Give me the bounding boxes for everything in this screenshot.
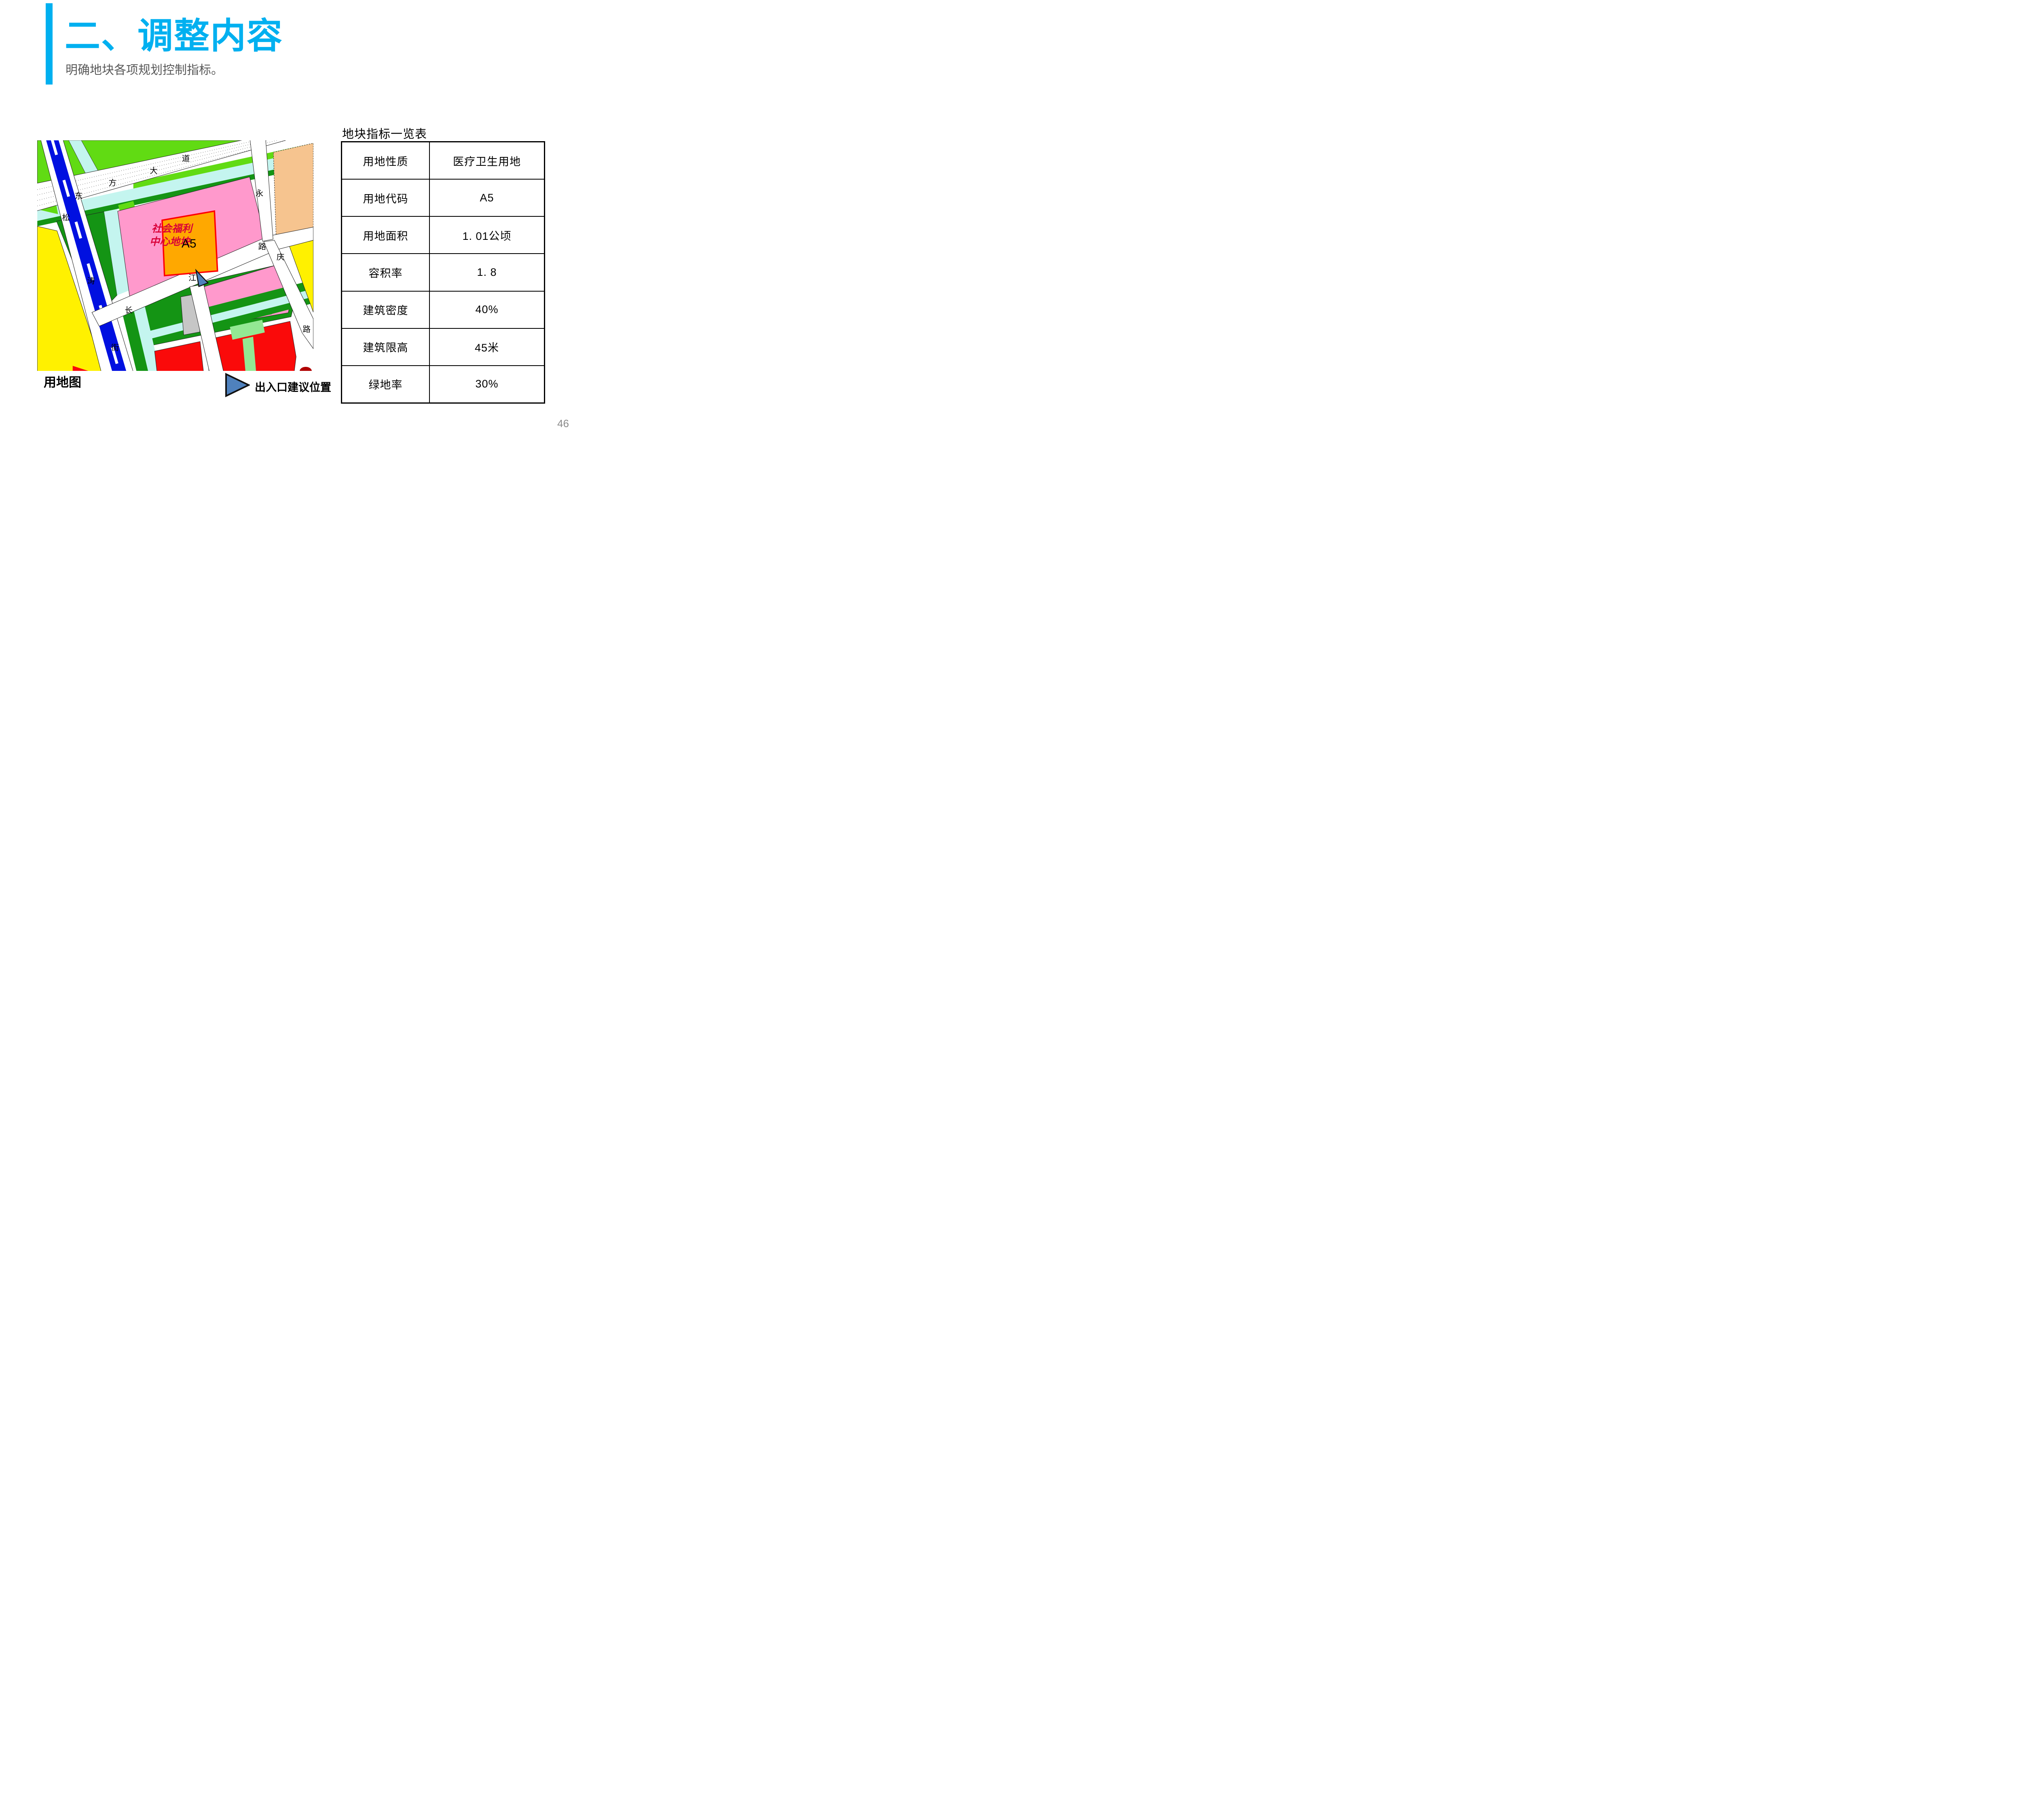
table-row: 用地性质 医疗卫生用地 (342, 142, 544, 180)
road-label-fang: 方 (109, 178, 117, 187)
land-use-map-svg: 东 方 大 道 松 涛 街 长 江 路 永 庆 路 社会福利 中心地块 A5 (37, 140, 313, 371)
row-label: 容积率 (342, 254, 430, 290)
parcel-red-southwest (154, 342, 203, 371)
row-label: 建筑限高 (342, 329, 430, 365)
row-value: 1. 01公顷 (430, 217, 544, 253)
page-title: 二、调整内容 (65, 7, 283, 59)
road-label-lu2: 路 (303, 325, 311, 334)
table-row: 建筑密度 40% (342, 292, 544, 329)
row-value: 40% (430, 292, 544, 328)
slide: 二、调整内容 明确地块各项规划控制指标。 (0, 0, 607, 455)
row-label: 用地面积 (342, 217, 430, 253)
title-accent-bar (46, 3, 53, 85)
table-row: 建筑限高 45米 (342, 329, 544, 366)
page-number: 46 (557, 417, 569, 430)
land-use-map: 东 方 大 道 松 涛 街 长 江 路 永 庆 路 社会福利 中心地块 A5 (37, 140, 313, 371)
road-label-tao: 涛 (87, 277, 95, 286)
row-value: 30% (430, 366, 544, 402)
road-label-song: 松 (62, 214, 70, 222)
road-label-da: 大 (150, 166, 158, 175)
parcel-darkred-blob (300, 367, 312, 371)
row-label: 绿地率 (342, 366, 430, 402)
row-label: 建筑密度 (342, 292, 430, 328)
road-label-yong: 永 (256, 189, 264, 198)
row-value: 45米 (430, 329, 544, 365)
road-label-dao: 道 (182, 154, 190, 163)
road-label-lu1: 路 (258, 242, 266, 251)
road-label-chang: 长 (125, 306, 133, 315)
entrance-legend-icon (225, 373, 250, 397)
row-label: 用地性质 (342, 142, 430, 179)
road-label-jie: 街 (111, 343, 119, 352)
plot-indicator-table: 用地性质 医疗卫生用地 用地代码 A5 用地面积 1. 01公顷 容积率 1. … (341, 141, 545, 404)
road-label-jiang: 江 (188, 273, 197, 282)
row-value: 医疗卫生用地 (430, 142, 544, 179)
map-caption: 用地图 (44, 372, 81, 390)
table-row: 容积率 1. 8 (342, 254, 544, 291)
plot-name-line1: 社会福利 (152, 223, 194, 234)
road-label-dong: 东 (75, 192, 83, 201)
table-title: 地块指标一览表 (342, 125, 427, 142)
row-label: 用地代码 (342, 180, 430, 216)
legend-label: 出入口建议位置 (255, 379, 331, 394)
row-value: A5 (430, 180, 544, 216)
table-row: 绿地率 30% (342, 366, 544, 402)
row-value: 1. 8 (430, 254, 544, 290)
road-label-qing: 庆 (277, 253, 285, 262)
page-subtitle: 明确地块各项规划控制指标。 (66, 60, 223, 78)
plot-code-label: A5 (182, 237, 197, 250)
table-row: 用地代码 A5 (342, 180, 544, 217)
table-row: 用地面积 1. 01公顷 (342, 217, 544, 254)
